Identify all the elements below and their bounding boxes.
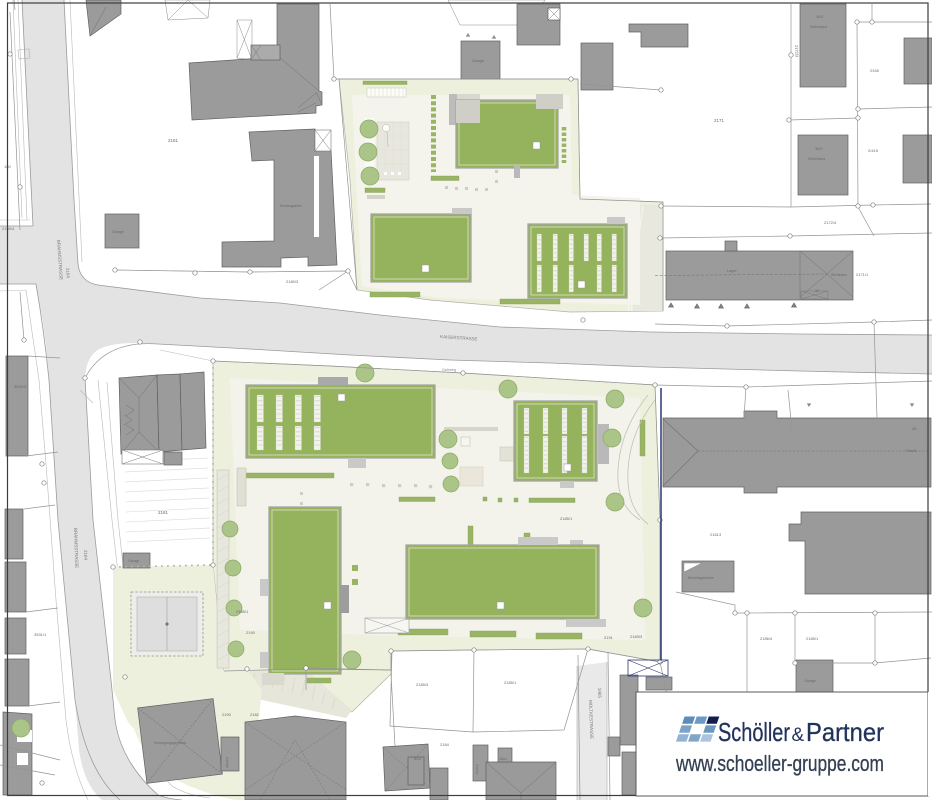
svg-text:2191: 2191 bbox=[604, 635, 614, 640]
svg-text:Wohnhaus: Wohnhaus bbox=[810, 25, 827, 29]
svg-text:36/2: 36/2 bbox=[815, 146, 824, 151]
svg-text:36/1: 36/1 bbox=[816, 14, 825, 19]
svg-text:Betriebsgebäude: Betriebsgebäude bbox=[688, 576, 714, 580]
svg-text:2171/1: 2171/1 bbox=[856, 272, 869, 277]
svg-text:2150/4: 2150/4 bbox=[2, 226, 15, 231]
svg-text:Garage: Garage bbox=[112, 230, 124, 234]
svg-text:www.schoeller-gruppe.com: www.schoeller-gruppe.com bbox=[675, 751, 884, 776]
svg-text:Gehweg: Gehweg bbox=[442, 368, 456, 372]
svg-text:2180/3: 2180/3 bbox=[286, 279, 299, 284]
svg-text:Versorgungsgebäude: Versorgungsgebäude bbox=[154, 741, 186, 745]
svg-text:3465: 3465 bbox=[597, 688, 602, 699]
svg-text:2181: 2181 bbox=[158, 510, 169, 515]
svg-text:2171: 2171 bbox=[714, 118, 725, 123]
svg-text:Fabrik: Fabrik bbox=[906, 449, 917, 453]
svg-text:2185/1: 2185/1 bbox=[560, 516, 573, 521]
svg-text:3531/1: 3531/1 bbox=[34, 632, 47, 637]
svg-text:Garage: Garage bbox=[128, 559, 139, 563]
svg-text:2172/3: 2172/3 bbox=[794, 45, 800, 58]
svg-text:2345: 2345 bbox=[870, 68, 880, 73]
svg-text:21613: 21613 bbox=[710, 532, 722, 537]
svg-text:2181: 2181 bbox=[168, 138, 179, 143]
svg-text:2/415: 2/415 bbox=[868, 148, 879, 153]
svg-text:Kindergarten: Kindergarten bbox=[280, 204, 302, 208]
svg-text:Garage: Garage bbox=[475, 764, 479, 775]
svg-text:Wohnhaus: Wohnhaus bbox=[808, 157, 825, 161]
svg-text:&: & bbox=[792, 725, 805, 746]
svg-text:38: 38 bbox=[912, 426, 917, 431]
svg-text:2185/1: 2185/1 bbox=[236, 609, 249, 614]
svg-text:2182: 2182 bbox=[250, 712, 260, 717]
svg-text:Schöller: Schöller bbox=[718, 717, 790, 747]
svg-text:2185/1: 2185/1 bbox=[806, 636, 819, 641]
svg-text:2186/4: 2186/4 bbox=[760, 636, 773, 641]
svg-text:2190: 2190 bbox=[246, 630, 256, 635]
svg-text:Büro: Büro bbox=[414, 757, 421, 761]
svg-text:Garage: Garage bbox=[804, 679, 816, 683]
svg-text:2164: 2164 bbox=[83, 550, 88, 561]
svg-text:Lager: Lager bbox=[727, 269, 737, 273]
svg-text:2190: 2190 bbox=[222, 712, 232, 717]
svg-text:Büro: Büro bbox=[500, 757, 507, 761]
svg-text:Wohnhaus: Wohnhaus bbox=[831, 273, 847, 277]
svg-text:Garage: Garage bbox=[225, 757, 229, 769]
svg-text:Garage: Garage bbox=[472, 59, 484, 63]
svg-text:2172/4: 2172/4 bbox=[824, 220, 837, 225]
svg-text:Partner: Partner bbox=[806, 717, 884, 747]
svg-text:2183/3: 2183/3 bbox=[630, 634, 643, 639]
svg-text:2184: 2184 bbox=[440, 742, 450, 747]
svg-text:2185/3: 2185/3 bbox=[416, 682, 429, 687]
svg-text:3531/3: 3531/3 bbox=[14, 384, 27, 389]
svg-text:2164: 2164 bbox=[65, 268, 71, 279]
svg-text:39: 39 bbox=[815, 289, 819, 293]
svg-text:2185/1: 2185/1 bbox=[504, 680, 517, 685]
